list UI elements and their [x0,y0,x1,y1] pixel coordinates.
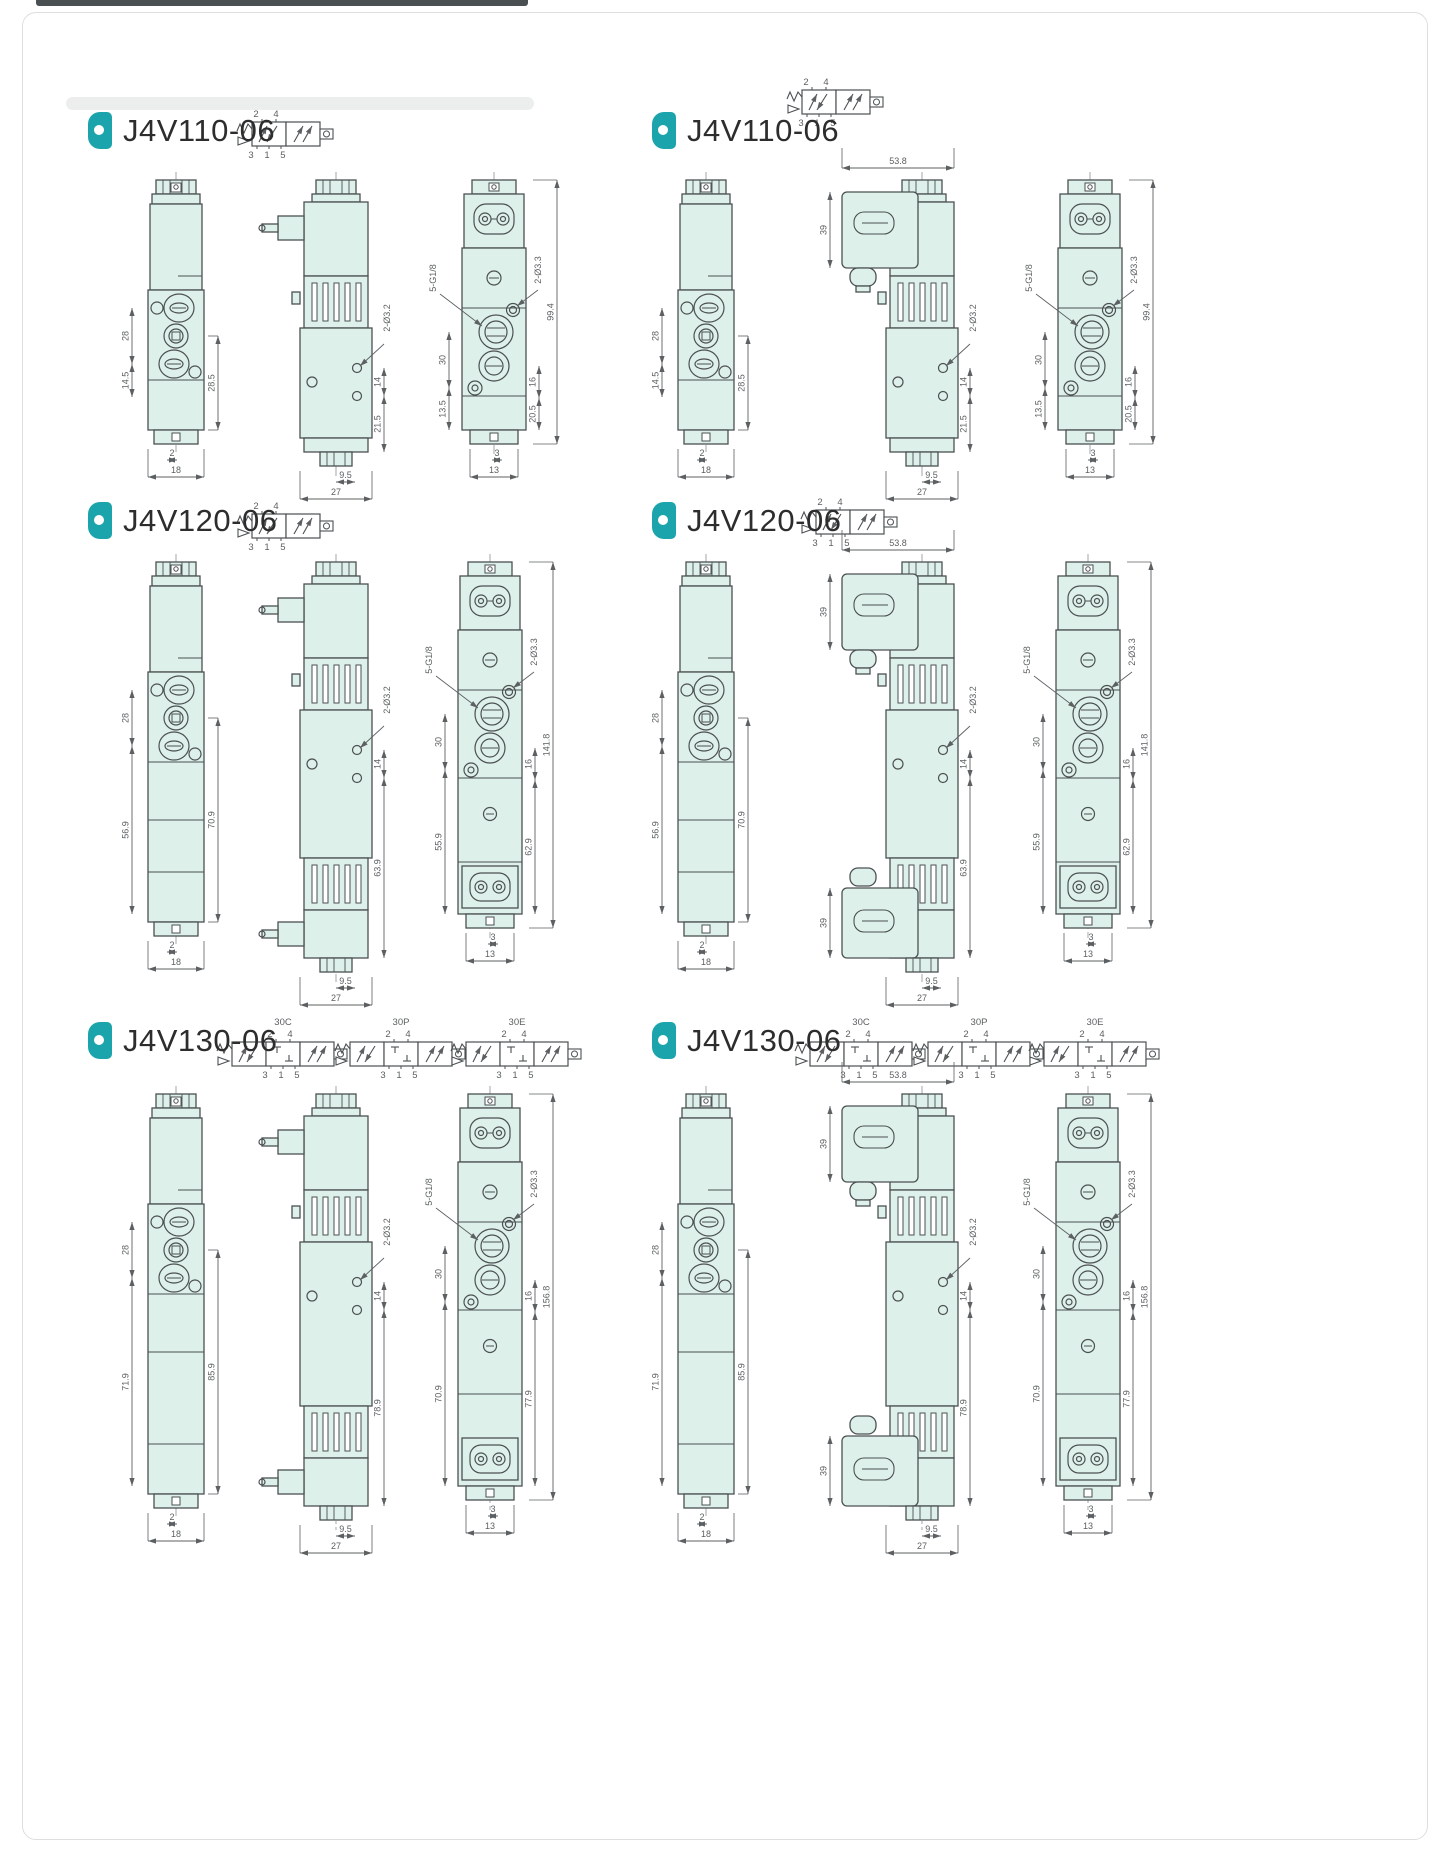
dim-label: 9.5 [925,470,938,480]
dim-arrow [364,1002,372,1007]
dim-arrow [1148,1492,1153,1500]
dim-arrow [215,422,220,430]
valve-body [300,710,372,858]
dim-arrow [827,950,832,958]
dim-label: 28.5 [207,374,217,392]
solenoid-body [680,204,732,290]
dim-label: 30 [1032,737,1042,747]
dim-label: 78.9 [959,1399,969,1417]
dim-label: 27 [331,1541,341,1551]
rib-slot [931,665,936,703]
dim-arrow [946,165,954,170]
dim-arrow [536,398,541,406]
dim-arrow [381,368,386,376]
dim-arrow [946,547,954,552]
dim-label: 14.5 [651,372,661,390]
rib-slot [345,865,350,903]
dim-label: 3 [1088,932,1093,942]
symbol-port-bottom: 3 1 5 [248,150,289,161]
dim-label: 70.9 [207,811,217,829]
rib-slot [323,1197,328,1235]
valve-body [462,248,526,430]
gland-cap [856,1200,870,1206]
symbol-cell [996,1042,1030,1066]
dim-arrow [967,1310,972,1318]
dim-label: 55.9 [434,833,444,851]
dim-arrow [442,1294,447,1302]
top-block [460,576,520,630]
dim-arrow [842,165,850,170]
top-cap [316,1094,356,1108]
dim-label: 16 [524,759,534,769]
dim-arrow [827,1436,832,1444]
dim-arrow [300,1550,308,1555]
cap-neck [312,576,360,584]
top-block [460,1108,520,1162]
rib-slot [334,865,339,903]
dim-arrow [470,474,478,479]
dim-arrow [532,772,537,780]
rib-slot [931,1197,936,1235]
side-tab [878,292,886,304]
rib-slot [356,283,361,321]
rib-slot [942,865,947,903]
dim-label: 62.9 [1122,838,1132,856]
dim-label: 5-G1/8 [428,264,438,292]
panel-3-drawings: 2 43 1 52856.970.921853.8392-Ø3.21463.93… [651,497,1154,1008]
dim-arrow [442,1246,447,1254]
rib-slot [312,1413,317,1451]
override-pin [262,224,278,232]
dim-label: 99.4 [546,303,556,321]
cap-neck [152,194,200,204]
end-view: 5-G1/83070.92-Ø3.31677.9156.8313 [1022,1086,1154,1536]
teal-badge-icon [88,112,112,149]
rib-slot [909,665,914,703]
model-title: J4V130-06 [123,1023,277,1059]
body-stub [304,438,368,452]
dim-arrow [300,496,308,501]
dim-arrow [827,888,832,896]
symbol-position-label: 30P [393,1017,410,1028]
dim-arrow [967,444,972,452]
side-view: 2871.985.9218 [651,1086,751,1544]
dim-label: 18 [701,957,711,967]
valve-symbol: 30E2 43 1 5 [451,1017,581,1081]
rib-slot [345,1197,350,1235]
dim-arrow [1042,422,1047,430]
dim-arrow [726,966,734,971]
dim-label: 2-Ø3.2 [382,686,392,714]
symbol-port-bottom: 3 1 5 [958,1070,999,1081]
dim-label: 9.5 [925,1524,938,1534]
dim-label: 70.9 [1032,1385,1042,1403]
rib-slot [931,865,936,903]
teal-badge-icon [88,1022,112,1059]
dim-arrow [446,422,451,430]
dim-label: 39 [819,918,829,928]
symbol-cell [878,1042,912,1066]
dim-arrow [466,1530,474,1535]
dim-label: 2-Ø3.2 [382,304,392,332]
dim-label: 13.5 [1034,400,1044,418]
dim-arrow [554,180,559,188]
valve-body [148,1204,204,1494]
dim-arrow [196,474,204,479]
dim-label: 62.9 [524,838,534,856]
dim-arrow [827,260,832,268]
dim-arrow [381,388,386,396]
dim-arrow [536,390,541,398]
dim-label: 2 [699,448,704,458]
dim-label: 5-G1/8 [1022,1178,1032,1206]
side-tab [292,1206,300,1218]
dim-arrow [1130,906,1135,914]
dim-arrow [726,1538,734,1543]
dim-arrow [1130,772,1135,780]
solenoid-housing [304,584,368,658]
dim-arrow [659,1270,664,1278]
model-title: J4V120-06 [687,503,841,539]
dim-label: 14 [373,377,383,387]
model-title: J4V120-06 [123,503,277,539]
dim-arrow [946,1079,954,1084]
rib-slot [334,1197,339,1235]
shape [702,433,710,441]
dim-arrow [922,985,930,990]
dim-label: 16 [1122,759,1132,769]
cable-gland [850,1182,876,1200]
dim-arrow [446,380,451,388]
dim-arrow [827,574,832,582]
shape [1083,1097,1093,1105]
rib-slot [920,1413,925,1451]
dim-label: 21.5 [959,415,969,433]
side-tab [292,292,300,304]
dim-arrow [659,690,664,698]
bottom-nub [320,1506,352,1520]
dim-label: 16 [1124,377,1134,387]
dim-label: 13 [485,949,495,959]
dim-arrow [129,364,134,372]
dim-arrow [129,906,134,914]
valve-symbol: 30E2 43 1 5 [1029,1017,1159,1081]
dim-label: 2 [699,1512,704,1522]
gland-cap [856,286,870,292]
dim-arrow [215,914,220,922]
end-view: 5-G1/83070.92-Ø3.31677.9156.8313 [424,1086,556,1536]
symbol-port-bottom: 3 1 5 [812,538,853,549]
dim-label: 30 [434,1269,444,1279]
symbol-cell [836,90,870,114]
dim-arrow [550,562,555,570]
rib-slot [942,283,947,321]
dim-arrow [466,958,474,963]
dim-label: 2-Ø3.3 [529,1170,539,1198]
valve-symbol: 30P2 43 1 5 [913,1017,1043,1081]
dim-arrow [442,1302,447,1310]
symbol-cell [844,1042,878,1066]
dim-arrow [550,1492,555,1500]
front-view: 2-Ø3.21463.99.527 [259,554,392,1008]
dim-arrow [129,690,134,698]
dim-arrow [1132,366,1137,374]
dim-arrow [1040,762,1045,770]
dim-arrow [506,958,514,963]
dim-arrow [950,1002,958,1007]
dim-arrow [967,770,972,778]
dim-arrow [1148,1094,1153,1102]
panel-header: J4V130-06 [652,1022,841,1059]
dim-arrow [827,192,832,200]
symbol-cell [300,1042,334,1066]
dim-label: 16 [1122,1291,1132,1301]
front-view: 53.8392-Ø3.21478.9399.527 [819,1062,979,1556]
dim-label: 39 [819,1139,829,1149]
shape [490,433,498,441]
dim-arrow [1040,714,1045,722]
dim-arrow [967,950,972,958]
solenoid-body [150,204,202,290]
dim-label: 18 [171,465,181,475]
shape [1084,917,1092,925]
dim-arrow [1130,1478,1135,1486]
dim-arrow [967,778,972,786]
symbol-port-bottom: 3 1 5 [1074,1070,1115,1081]
panel-2-drawings: 2 43 1 52856.970.92182-Ø3.21463.99.5275-… [121,501,556,1008]
dim-arrow [381,1498,386,1506]
dim-arrow [336,479,344,484]
solenoid-housing [304,910,368,958]
dim-label: 2-Ø3.2 [968,304,978,332]
dim-label: 2-Ø3.3 [1127,638,1137,666]
valve-body [148,290,204,430]
dim-arrow [510,474,518,479]
dim-arrow [336,1533,344,1538]
dim-arrow [967,388,972,396]
cable-gland [850,650,876,668]
dim-label: 13.5 [438,400,448,418]
front-view: 2-Ø3.21478.99.527 [259,1086,392,1556]
dim-label: 27 [917,993,927,1003]
dim-label: 63.9 [959,859,969,877]
dim-label: 30 [438,355,448,365]
dim-label: 53.8 [889,156,907,166]
dim-arrow [1106,474,1114,479]
dim-arrow [364,1550,372,1555]
side-tab [292,674,300,686]
symbol-cell [1112,1042,1146,1066]
shape [485,1097,495,1105]
dim-label: 2-Ø3.2 [968,1218,978,1246]
symbol-port-top: 2 4 [1079,1029,1110,1040]
end-view: 5-G1/83013.52-Ø3.31620.599.4313 [428,172,560,480]
teal-badge-icon [88,502,112,539]
side-view: 2856.970.9218 [651,554,751,972]
solenoid-body [150,1118,202,1204]
panel-4-drawings: 30C2 43 1 530P2 43 1 530E2 43 1 52871.98… [121,1017,582,1556]
shape [1085,183,1095,191]
rib-slot [334,1413,339,1451]
model-title: J4V110-06 [687,113,839,149]
dim-arrow [1148,562,1153,570]
symbol-cell [500,1042,534,1066]
dim-label: 99.4 [1142,303,1152,321]
override-block [278,1130,304,1154]
rib-slot [323,865,328,903]
dim-arrow [129,308,134,316]
dim-label: 28 [651,1245,661,1255]
dim-label: 28 [121,713,131,723]
side-view: 2814.528.5218 [121,172,221,480]
dim-label: 56.9 [651,821,661,839]
end-view: 5-G1/83013.52-Ø3.31620.599.4313 [1024,172,1156,480]
catalog-page: { "colors": { "accent": "#1ba4ab", "body… [0,0,1450,1854]
dim-label: 18 [171,957,181,967]
dim-label: 2-Ø3.3 [1127,1170,1137,1198]
symbol-position-label: 30P [971,1017,988,1028]
valve-body [678,672,734,922]
teal-badge-icon [652,112,676,149]
teal-badge-icon [652,502,676,539]
dim-arrow [381,396,386,404]
dim-arrow [532,906,537,914]
dim-label: 2-Ø3.3 [529,638,539,666]
dim-label: 5-G1/8 [424,646,434,674]
dim-label: 13 [489,465,499,475]
rib-slot [356,865,361,903]
dim-label: 2-Ø3.2 [382,1218,392,1246]
dim-arrow [933,985,941,990]
panel-header: J4V110-06 [88,112,275,149]
valve-symbol: 30P2 43 1 5 [335,1017,465,1081]
dim-arrow [659,738,664,746]
dim-label: 78.9 [373,1399,383,1417]
cap-neck [682,1108,730,1118]
dim-arrow [442,762,447,770]
dim-arrow [129,1278,134,1286]
dim-arrow [1040,906,1045,914]
dim-label: 71.9 [121,1373,131,1391]
dim-arrow [1132,390,1137,398]
dim-arrow [381,1282,386,1290]
shape [702,1497,710,1505]
top-cap [316,562,356,576]
cap-neck [312,194,360,202]
dim-label: 5-G1/8 [1022,646,1032,674]
override-pin [262,930,278,938]
dim-arrow [922,479,930,484]
dim-arrow [827,1174,832,1182]
dim-label: 2 [169,448,174,458]
dim-label: 2 [699,940,704,950]
dim-label: 141.8 [1140,734,1150,757]
symbol-position-label: 30E [1087,1017,1104,1028]
rib-slot [345,283,350,321]
valve-body [1058,248,1122,430]
symbol-cell [286,514,320,538]
rib-slot [334,665,339,703]
symbol-cell [1078,1042,1112,1066]
dim-label: 28.5 [737,374,747,392]
symbol-cell [418,1042,452,1066]
solenoid-housing [304,1116,368,1190]
top-block [1058,1108,1118,1162]
shape [486,1489,494,1497]
symbol-cell [534,1042,568,1066]
panel-5-drawings: 30C2 43 1 530P2 43 1 530E2 43 1 52871.98… [651,1017,1160,1556]
dim-label: 85.9 [207,1363,217,1381]
dim-label: 3 [1088,1504,1093,1514]
valve-body [886,710,958,858]
rib-slot [909,283,914,321]
dim-label: 14 [959,759,969,769]
dim-arrow [215,1486,220,1494]
override-pin [262,1138,278,1146]
bottom-nub [906,1506,938,1520]
rib-slot [312,865,317,903]
dim-arrow [678,966,686,971]
rib-slot [920,283,925,321]
valve-body [678,1204,734,1494]
dim-arrow [532,1478,537,1486]
symbol-cell [850,510,884,534]
dim-arrow [336,985,344,990]
dim-arrow [442,1478,447,1486]
dim-label: 30 [1032,1269,1042,1279]
dim-label: 2-Ø3.3 [533,256,543,284]
side-view: 2871.985.9218 [121,1086,221,1544]
dim-label: 39 [819,1466,829,1476]
dim-label: 9.5 [925,976,938,986]
rib-slot [345,1413,350,1451]
front-view: 2-Ø3.21421.59.527 [259,172,392,502]
dim-arrow [1150,436,1155,444]
dim-label: 3 [490,932,495,942]
override-block [278,216,304,240]
dim-arrow [381,950,386,958]
symbol-port-bottom: 3 1 5 [496,1070,537,1081]
dim-arrow [1042,388,1047,396]
dim-arrow [745,422,750,430]
panel-header: J4V120-06 [652,502,841,539]
dim-arrow [726,474,734,479]
shape [485,565,495,573]
spring-icon [787,92,802,101]
dim-label: 77.9 [1122,1390,1132,1408]
side-tab [878,674,886,686]
dim-label: 5-G1/8 [424,1178,434,1206]
dim-arrow [550,1094,555,1102]
valve-body [678,290,734,430]
dim-label: 70.9 [434,1385,444,1403]
dim-label: 13 [1083,949,1093,959]
symbol-port-bottom: 3 1 5 [262,1070,303,1081]
dim-label: 2 [169,1512,174,1522]
dim-arrow [364,496,372,501]
valve-drawings-canvas: 2 43 1 52814.528.52182-Ø3.21421.59.5275-… [0,0,1450,1854]
solenoid-housing [304,1458,368,1506]
dim-arrow [215,1250,220,1258]
dim-arrow [1042,332,1047,340]
dim-arrow [300,1002,308,1007]
din-connector [842,574,918,650]
dim-arrow [532,1312,537,1320]
dim-arrow [745,1250,750,1258]
dim-arrow [659,364,664,372]
rib-slot [931,283,936,321]
dim-label: 156.8 [542,1286,552,1309]
